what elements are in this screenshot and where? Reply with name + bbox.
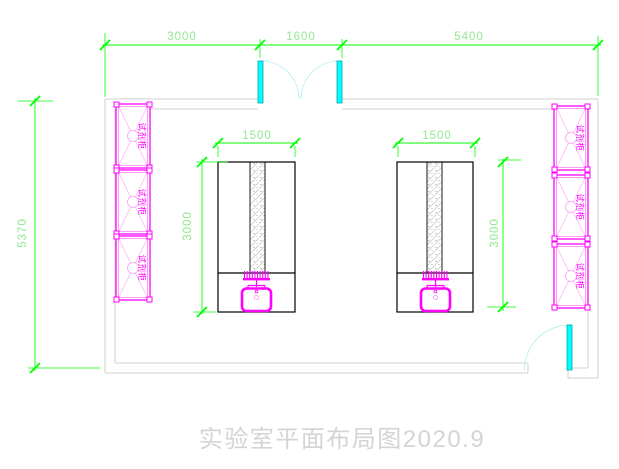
reagent-cabinet-column-right: 试剂柜 试剂柜 试剂柜: [552, 104, 590, 310]
cabinet-label: 试剂柜: [575, 262, 585, 289]
lab-bench-left: [218, 162, 295, 312]
dim-text-bench-width: 1500: [242, 130, 272, 142]
dimension-top: 3000 1600 5400: [100, 31, 603, 97]
dim-text-door-opening: 1600: [286, 31, 316, 43]
cabinet-label: 试剂柜: [137, 122, 147, 149]
door-leaf: [567, 325, 572, 370]
door-leaf: [258, 61, 263, 103]
entry-double-door: [258, 61, 342, 103]
room-walls: [105, 99, 598, 378]
cabinet-label: 试剂柜: [137, 188, 147, 215]
dimension-bench-width-right: 1500: [393, 130, 480, 157]
dim-text-bench-width: 1500: [422, 130, 452, 142]
door-swing-arc: [301, 61, 339, 99]
dim-text-top-left: 3000: [167, 31, 197, 43]
cabinet-label: 试剂柜: [575, 193, 585, 220]
cad-canvas: 试剂柜 试剂柜 试剂柜 试剂柜 试剂柜 试剂柜 3000 1600 5400: [0, 0, 619, 469]
side-door: [525, 325, 573, 370]
dim-text-bench-length: 3000: [489, 218, 501, 248]
lab-bench-right: [397, 162, 473, 312]
dim-text-room-height: 5370: [17, 218, 29, 248]
bench-reagent-shelf: [250, 162, 265, 273]
bench-reagent-shelf: [427, 162, 442, 273]
dim-text-top-right: 5400: [454, 31, 484, 43]
cabinet-label: 试剂柜: [575, 124, 585, 151]
reagent-cabinet-column-left: 试剂柜 试剂柜 试剂柜: [114, 102, 152, 302]
cabinet-label: 试剂柜: [137, 254, 147, 281]
dimension-room-height: 5370: [17, 96, 100, 373]
dimension-bench-length-right: 3000: [487, 157, 521, 312]
door-swing-arc: [261, 61, 299, 99]
drawing-title: 实验室平面布局图2020.9: [199, 426, 485, 453]
door-leaf: [337, 61, 342, 103]
dimension-bench-width-left: 1500: [213, 130, 300, 157]
dim-text-bench-length: 3000: [182, 211, 194, 241]
door-swing-arc: [525, 325, 570, 370]
